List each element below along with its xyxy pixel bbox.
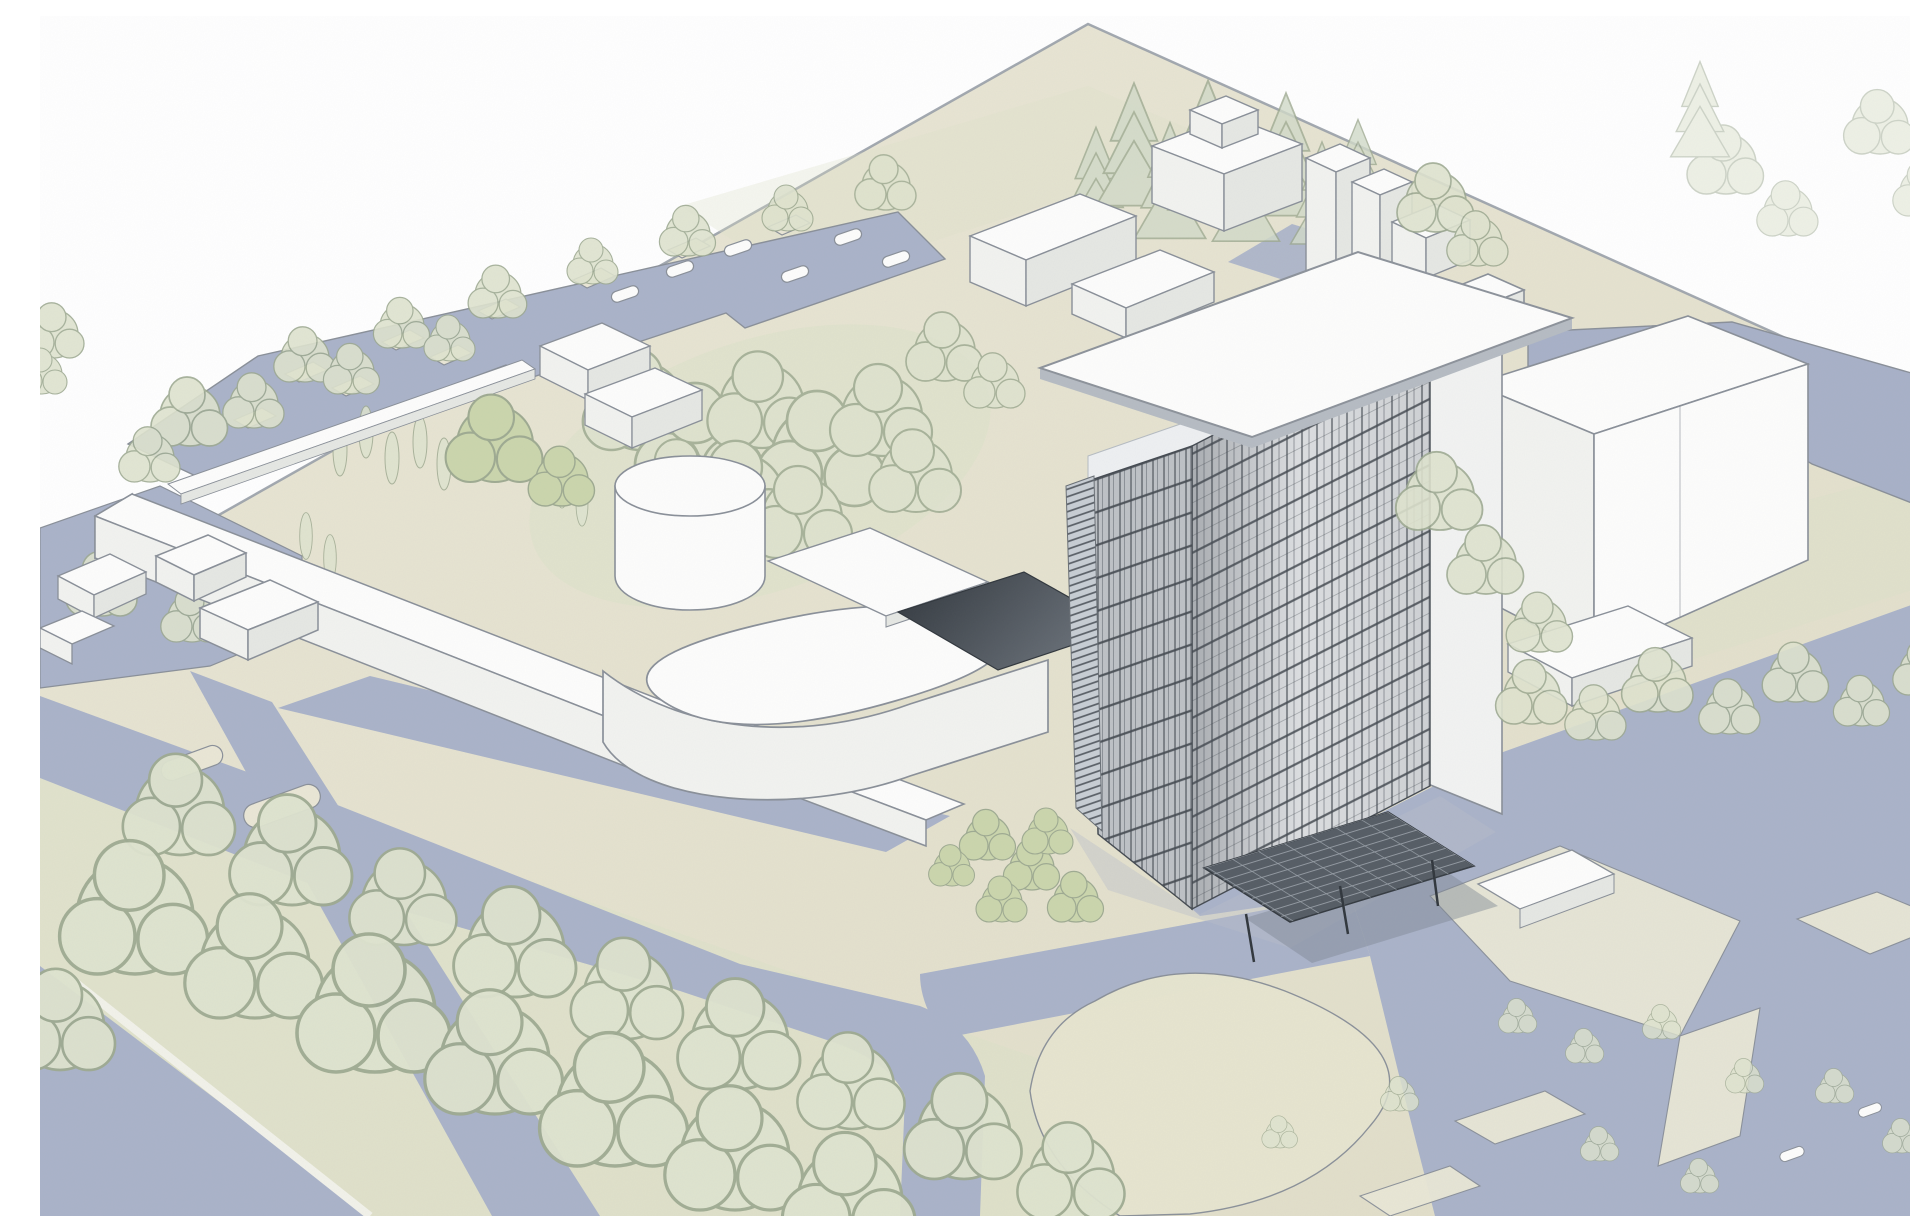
paper-grain-overlay — [40, 16, 1910, 1216]
rendering-canvas: Architectural aerial perspective sketch … — [40, 16, 1910, 1216]
architectural-site-rendering: Architectural aerial perspective sketch … — [40, 16, 1910, 1216]
